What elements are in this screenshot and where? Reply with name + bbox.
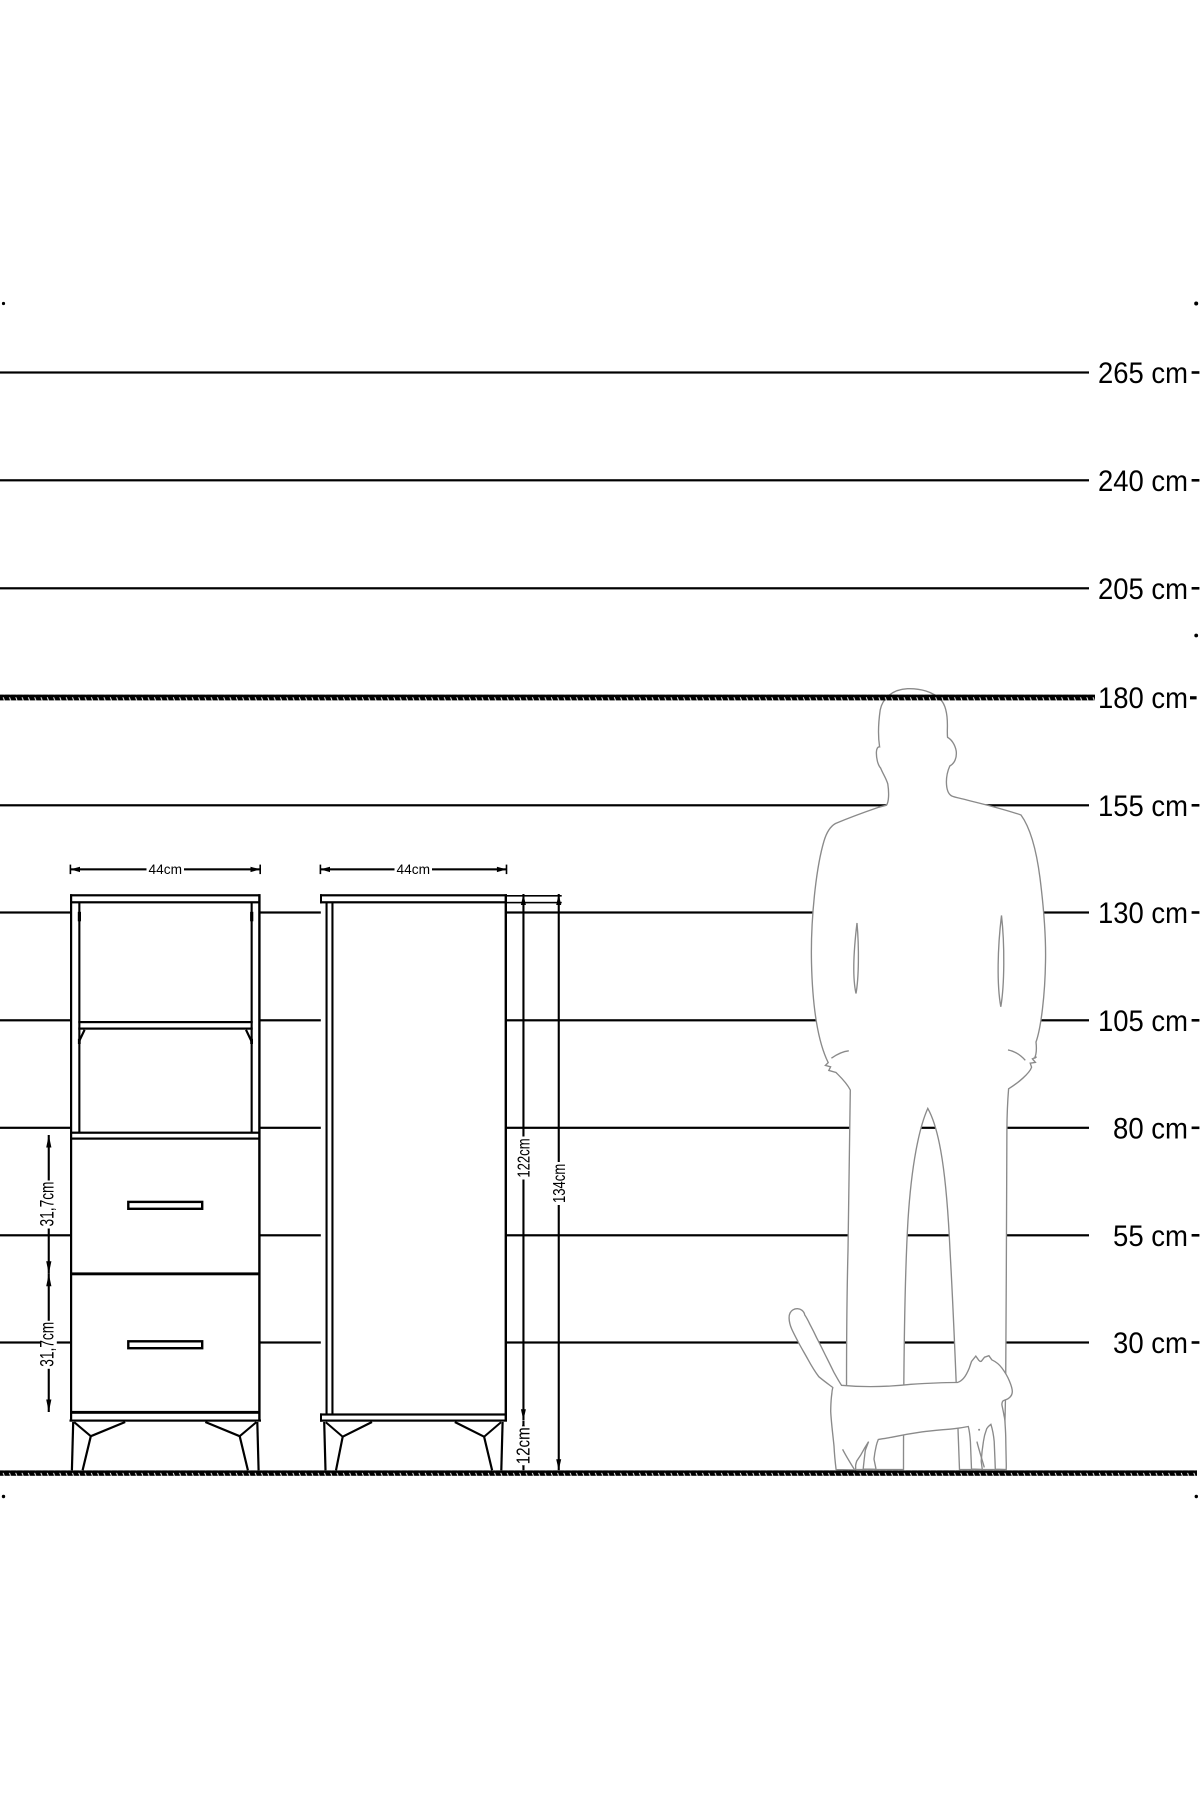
- svg-text:122cm: 122cm: [514, 1138, 534, 1177]
- svg-text:265 cm: 265 cm: [1098, 357, 1188, 390]
- svg-text:134cm: 134cm: [549, 1164, 569, 1203]
- svg-text:30 cm: 30 cm: [1113, 1327, 1188, 1360]
- svg-text:44cm: 44cm: [149, 862, 183, 877]
- svg-text:180 cm: 180 cm: [1098, 682, 1188, 715]
- svg-text:31,7cm: 31,7cm: [38, 1322, 59, 1367]
- svg-text:105 cm: 105 cm: [1098, 1005, 1188, 1038]
- svg-text:240 cm: 240 cm: [1098, 465, 1188, 498]
- svg-text:12cm: 12cm: [514, 1427, 534, 1464]
- svg-text:80 cm: 80 cm: [1113, 1112, 1188, 1145]
- svg-text:55 cm: 55 cm: [1113, 1220, 1188, 1253]
- svg-text:31,7cm: 31,7cm: [38, 1182, 59, 1227]
- svg-text:44cm: 44cm: [397, 862, 431, 877]
- svg-text:205 cm: 205 cm: [1098, 573, 1188, 606]
- svg-text:130 cm: 130 cm: [1098, 897, 1188, 930]
- svg-text:155 cm: 155 cm: [1098, 790, 1188, 823]
